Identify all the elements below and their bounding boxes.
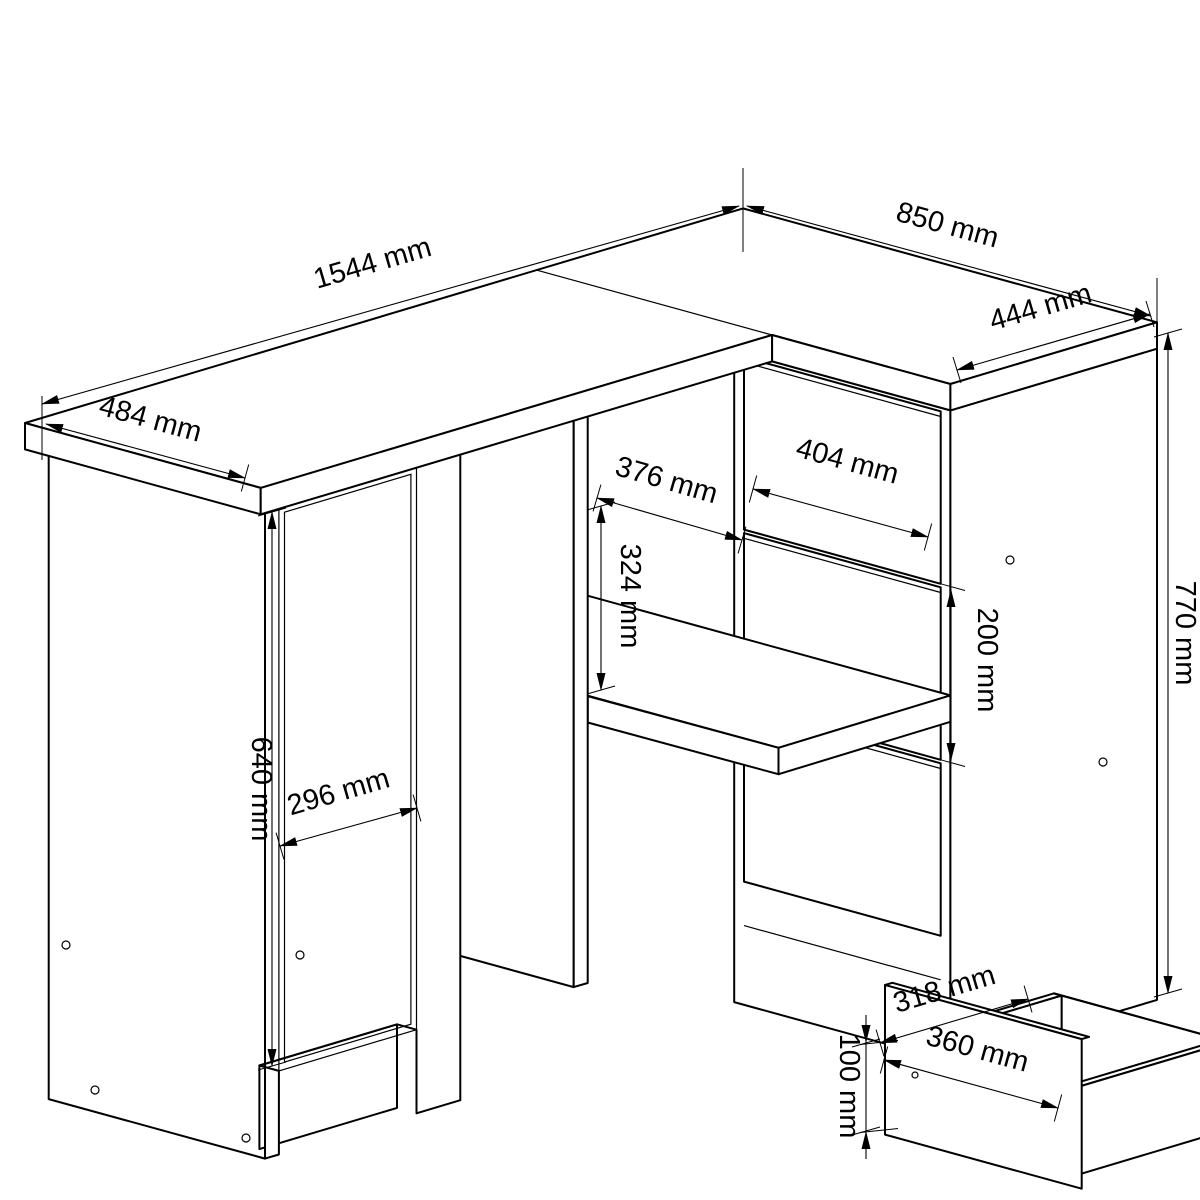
- dim-label-850: 850 mm: [893, 196, 1002, 254]
- dim-label-200: 200 mm: [971, 608, 1003, 713]
- pulled-out-drawer: [885, 983, 1200, 1189]
- dim-label-376: 376 mm: [612, 450, 722, 510]
- dimension-770: 770 mm: [1154, 329, 1200, 997]
- drawer-front-hole: [912, 1072, 918, 1078]
- dim-label-770: 770 mm: [1169, 581, 1200, 686]
- door-handle-hole: [296, 951, 304, 959]
- cam-hole: [242, 1134, 250, 1142]
- dim-label-324: 324 mm: [614, 544, 646, 649]
- cam-hole: [1099, 758, 1107, 766]
- partition-front-band: [574, 411, 588, 987]
- dimension-376: 376 mm: [593, 450, 746, 553]
- cam-hole: [91, 1086, 99, 1094]
- corner-desk-technical-drawing: 1544 mm 850 mm 444 mm 484 mm 640 mm: [0, 0, 1200, 1200]
- cam-hole: [62, 941, 70, 949]
- dim-label-100: 100 mm: [833, 1034, 865, 1139]
- dim-label-1544: 1544 mm: [310, 231, 435, 295]
- cam-hole: [1006, 556, 1014, 564]
- dim-label-640: 640 mm: [245, 737, 277, 842]
- cabinet-left-panel: [49, 448, 265, 1159]
- drawing-canvas: 1544 mm 850 mm 444 mm 484 mm 640 mm: [0, 0, 1200, 1200]
